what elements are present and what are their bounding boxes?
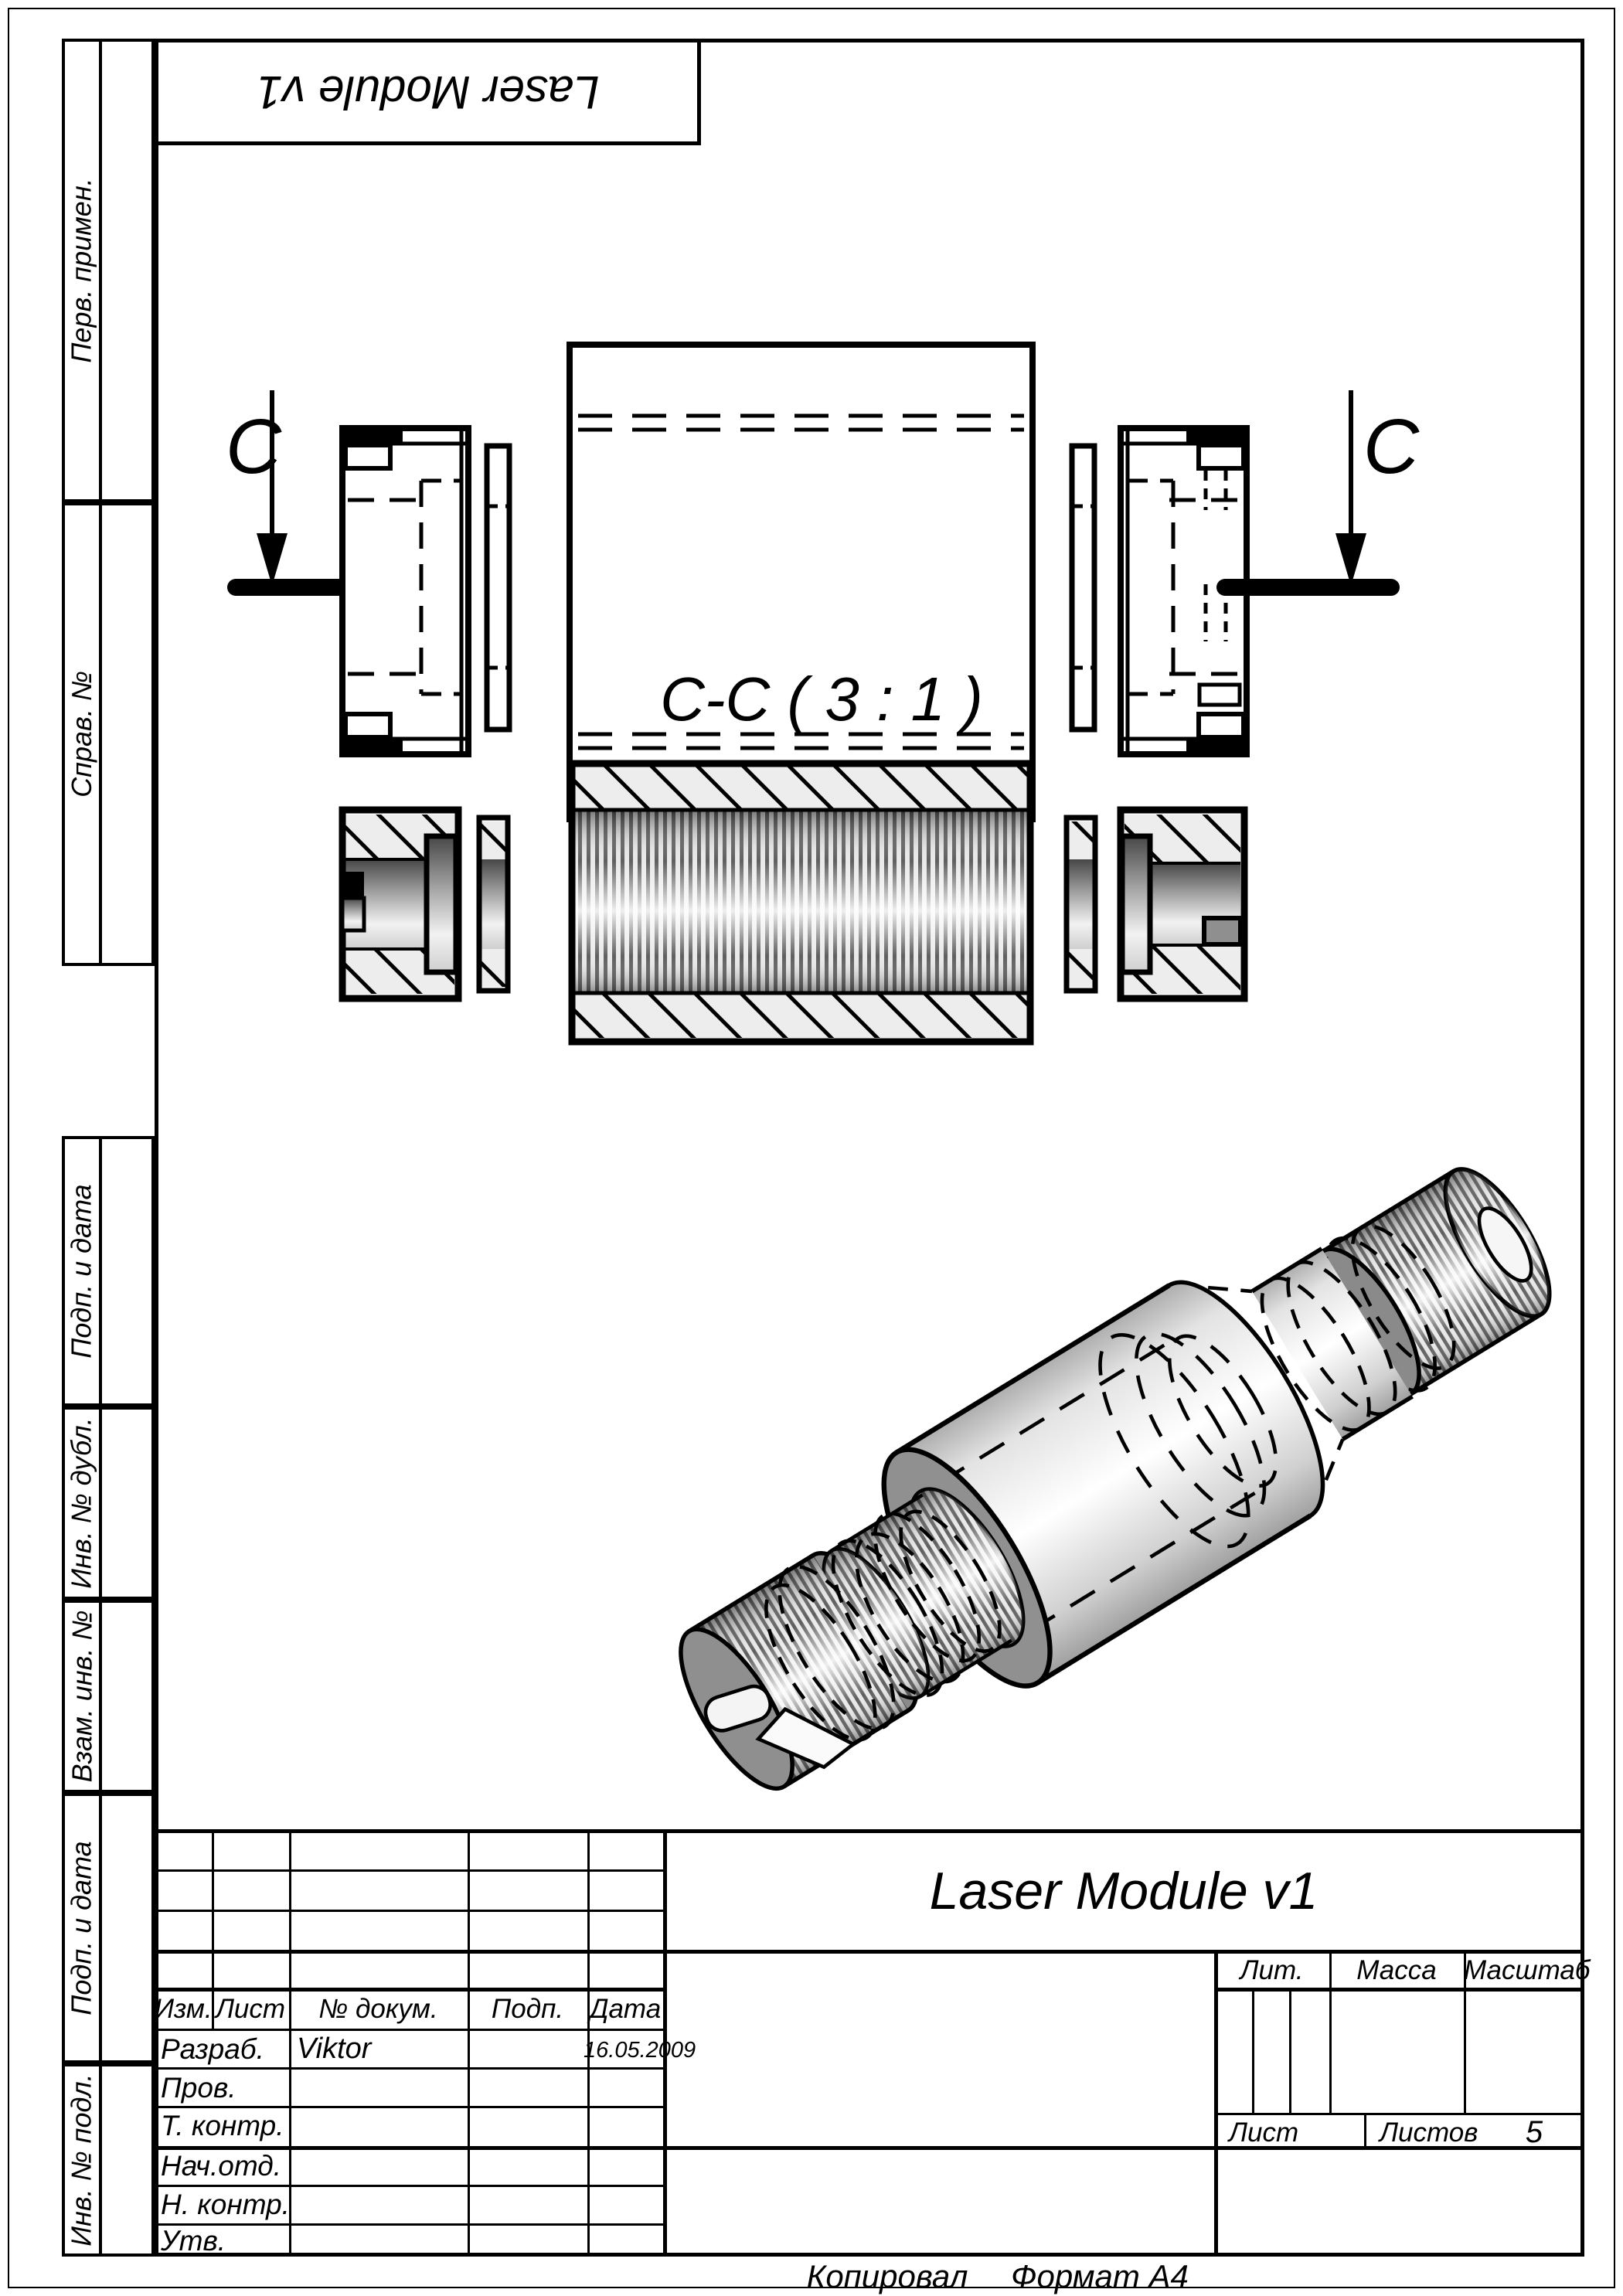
col-doc-no: № докум. bbox=[289, 1994, 468, 2025]
top-view-right-washer bbox=[1072, 446, 1094, 730]
section-arrow-right bbox=[1335, 533, 1366, 586]
doc-title: Laser Module v1 bbox=[663, 1861, 1584, 1921]
isometric-view bbox=[637, 1111, 1596, 1842]
sheets-label: Листов bbox=[1380, 2117, 1478, 2148]
lit-label: Лит. bbox=[1214, 1955, 1329, 1986]
drawing-sheet: Laser Module v1 Перв. примен. Справ. № П… bbox=[0, 0, 1623, 2296]
section-view-label: C-C ( 3 : 1 ) bbox=[660, 665, 983, 733]
col-list: Лист bbox=[212, 1994, 289, 2025]
section-right-washer bbox=[1067, 818, 1095, 991]
row-label-nachotd: Нач.отд. bbox=[161, 2150, 281, 2182]
design-date: 16.05.2009 bbox=[584, 2038, 696, 2063]
cut-letter-right: C bbox=[1363, 403, 1420, 490]
row-label-razrab: Разраб. bbox=[161, 2033, 264, 2066]
section-arrow-left bbox=[257, 533, 288, 586]
assembly-top-view: C bbox=[226, 345, 1420, 819]
col-izm: Изм. bbox=[155, 1994, 212, 2025]
sheets-value: 5 bbox=[1507, 2115, 1561, 2150]
copied-label: Копировал bbox=[802, 2258, 972, 2295]
row-label-utv: Утв. bbox=[161, 2225, 226, 2257]
section-left-cap bbox=[342, 810, 458, 998]
section-view bbox=[342, 764, 1244, 1042]
mass-label: Масса bbox=[1329, 1955, 1464, 1986]
sheet-label: Лист bbox=[1229, 2117, 1298, 2148]
row-label-tkontr: Т. контр. bbox=[161, 2110, 284, 2142]
col-podp: Подп. bbox=[468, 1994, 587, 2025]
designer-name: Viktor bbox=[297, 2032, 371, 2066]
row-label-nkontr: Н. контр. bbox=[161, 2189, 290, 2221]
format-label: Формат А4 bbox=[1011, 2258, 1189, 2295]
section-right-cap bbox=[1121, 810, 1244, 998]
top-view-left-washer bbox=[487, 446, 509, 730]
section-body bbox=[572, 764, 1030, 1042]
row-label-prov: Пров. bbox=[161, 2072, 236, 2104]
section-left-washer bbox=[479, 818, 508, 991]
top-view-body bbox=[570, 345, 1033, 819]
col-date: Дата bbox=[587, 1994, 663, 2025]
top-view-left-cap bbox=[342, 428, 468, 754]
scale-label: Масштаб bbox=[1464, 1955, 1584, 1986]
